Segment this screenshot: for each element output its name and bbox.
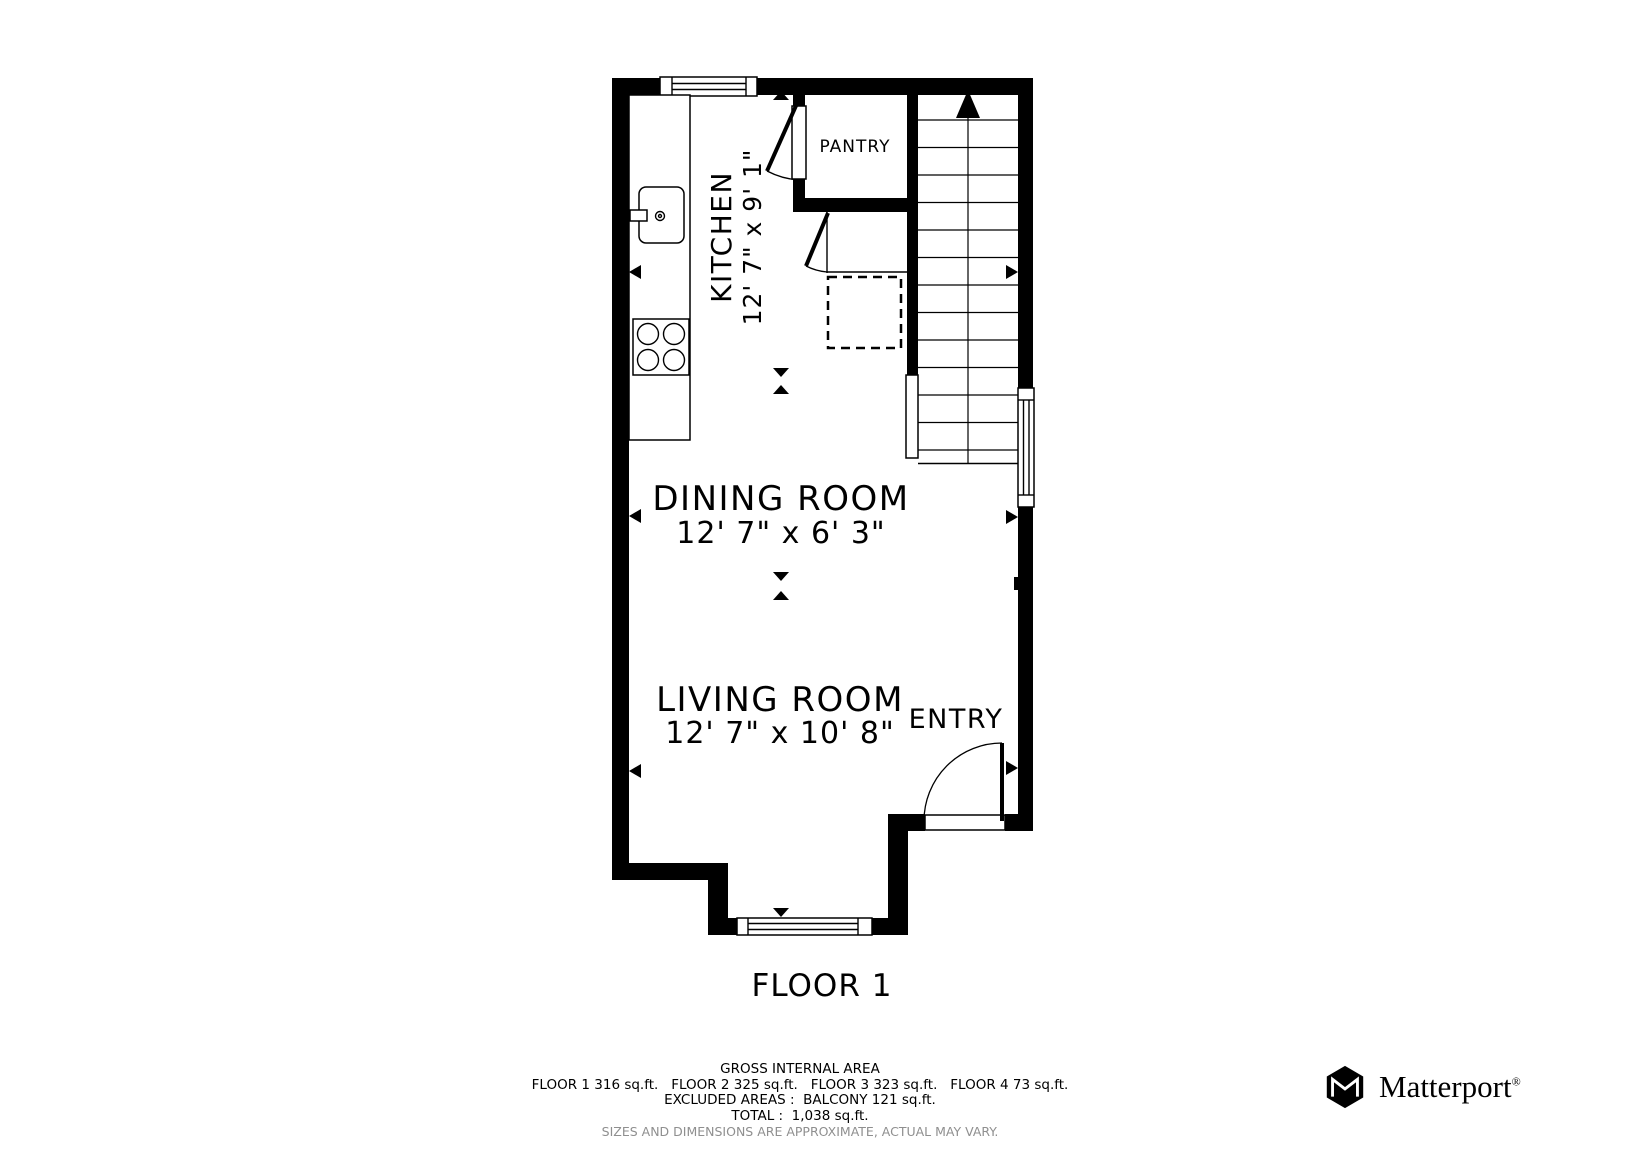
marker-up-icon	[773, 591, 789, 600]
floorplan-drawing: PANTRY KITCHEN 12' 7" x 9' 1" DINING ROO…	[0, 0, 1647, 1164]
room-label-pantry: PANTRY	[819, 137, 890, 157]
area-summary-floors: FLOOR 1 316 sq.ft. FLOOR 2 325 sq.ft. FL…	[400, 1078, 1200, 1094]
closet-door	[806, 213, 828, 272]
window-right	[1018, 388, 1034, 507]
floor-title: FLOOR 1	[752, 968, 893, 1004]
marker-left-icon	[629, 509, 641, 523]
stair-railing	[906, 375, 918, 458]
wall-stair-left	[907, 95, 918, 375]
marker-right-icon	[1006, 510, 1018, 524]
room-label-kitchen: KITCHEN	[705, 171, 738, 303]
closet-door-leaf	[806, 213, 828, 266]
entry-door-arc	[924, 743, 1002, 821]
area-summary-title: GROSS INTERNAL AREA	[400, 1062, 1200, 1078]
wall-living-bottom	[612, 863, 728, 880]
entry-door	[924, 743, 1005, 830]
entry-door-threshold	[925, 815, 1005, 830]
room-label-kitchen-group: KITCHEN 12' 7" x 9' 1"	[705, 149, 767, 326]
marker-down-icon	[773, 572, 789, 581]
area-summary-disclaimer: SIZES AND DIMENSIONS ARE APPROXIMATE, AC…	[400, 1124, 1200, 1140]
room-label-dining: DINING ROOM	[652, 479, 909, 519]
stairs	[906, 90, 1018, 464]
room-dims-dining: 12' 7" x 6' 3"	[676, 516, 885, 551]
stove	[633, 319, 689, 375]
area-summary-total: TOTAL : 1,038 sq.ft.	[400, 1109, 1200, 1125]
room-dims-living: 12' 7" x 10' 8"	[665, 716, 895, 751]
pantry-door-opening	[792, 106, 806, 179]
wall-left	[612, 78, 629, 880]
marker-down-icon	[773, 368, 789, 377]
marker-left-icon	[629, 764, 641, 778]
registered-mark: ®	[1512, 1075, 1521, 1089]
room-dims-kitchen: 12' 7" x 9' 1"	[738, 149, 767, 326]
window-top	[660, 77, 757, 96]
wall-nub	[1014, 577, 1019, 590]
wall-entry-side	[888, 831, 908, 935]
marker-down-icon	[773, 908, 789, 917]
area-summary-excluded: EXCLUDED AREAS : BALCONY 121 sq.ft.	[400, 1093, 1200, 1109]
wall-entry-bottom-left	[888, 814, 925, 831]
matterport-wordmark: Matterport®	[1379, 1069, 1521, 1105]
matterport-branding: Matterport®	[1322, 1064, 1521, 1110]
room-label-living: LIVING ROOM	[656, 680, 904, 720]
closet-under-stairs	[827, 212, 907, 273]
room-label-entry: ENTRY	[909, 704, 1004, 735]
marker-up-icon	[773, 385, 789, 394]
floorplan-page: PANTRY KITCHEN 12' 7" x 9' 1" DINING ROO…	[0, 0, 1647, 1164]
window-bottom	[737, 918, 872, 935]
marker-right-icon	[1006, 761, 1018, 775]
wall-pantry-bottom	[793, 198, 918, 212]
appliance-dashed-outline	[828, 277, 901, 348]
matterport-logo-icon	[1322, 1064, 1368, 1110]
pantry-door	[767, 99, 806, 180]
marker-right-icon	[1006, 265, 1018, 279]
area-summary: GROSS INTERNAL AREA FLOOR 1 316 sq.ft. F…	[400, 1062, 1200, 1140]
wall-entry-bottom-right	[1005, 814, 1033, 831]
closet-door-arc	[806, 266, 827, 272]
